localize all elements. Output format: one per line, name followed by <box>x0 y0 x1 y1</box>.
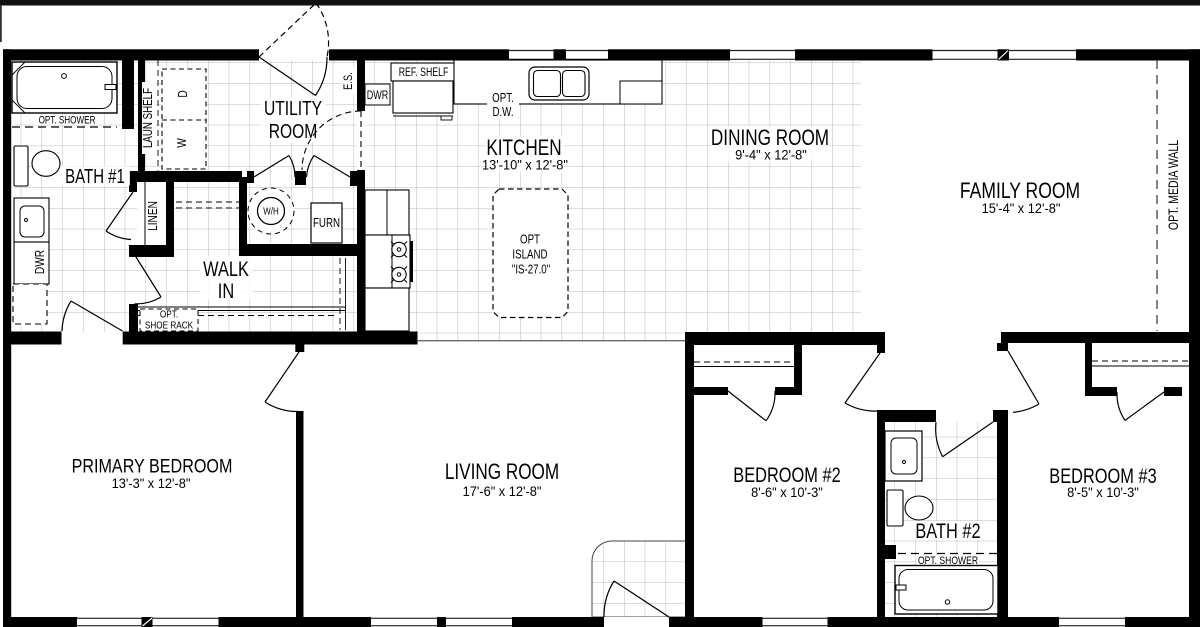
svg-text:FURN: FURN <box>313 217 340 230</box>
svg-text:"IS-27.0": "IS-27.0" <box>512 263 550 276</box>
svg-text:13'-10" x 12'-8": 13'-10" x 12'-8" <box>482 157 568 172</box>
svg-text:PRIMARY BEDROOM: PRIMARY BEDROOM <box>72 455 233 477</box>
svg-text:ROOM: ROOM <box>269 120 318 142</box>
svg-text:17'-6" x 12'-8": 17'-6" x 12'-8" <box>463 484 542 499</box>
svg-text:OPT. SHOWER: OPT. SHOWER <box>39 114 96 127</box>
svg-text:REF. SHELF: REF. SHELF <box>399 66 449 80</box>
svg-text:LIVING ROOM: LIVING ROOM <box>445 460 559 485</box>
svg-text:LINEN: LINEN <box>146 201 160 231</box>
svg-text:W: W <box>175 138 189 148</box>
svg-text:BEDROOM #2: BEDROOM #2 <box>733 463 840 486</box>
svg-text:8'-5" x 10'-3": 8'-5" x 10'-3" <box>1067 485 1139 500</box>
svg-text:OPT: OPT <box>520 233 540 246</box>
svg-text:IN: IN <box>218 279 234 302</box>
svg-text:15'-4" x 12'-8": 15'-4" x 12'-8" <box>982 201 1061 216</box>
svg-text:DWR: DWR <box>367 89 389 103</box>
svg-text:SHOE RACK: SHOE RACK <box>145 318 194 330</box>
svg-text:BATH #2: BATH #2 <box>915 519 980 542</box>
svg-text:OPT. MEDIA WALL: OPT. MEDIA WALL <box>1166 140 1182 230</box>
svg-text:UTILITY: UTILITY <box>264 97 322 119</box>
svg-text:D: D <box>176 90 190 97</box>
svg-text:BATH #1: BATH #1 <box>65 165 125 188</box>
svg-text:OPT.: OPT. <box>492 92 514 105</box>
svg-text:LAUN SHELF: LAUN SHELF <box>142 88 155 148</box>
svg-text:8'-6" x 10'-3": 8'-6" x 10'-3" <box>751 485 823 500</box>
svg-text:W/H: W/H <box>263 206 279 217</box>
svg-text:13'-3" x 12'-8": 13'-3" x 12'-8" <box>112 476 191 491</box>
svg-text:DWR: DWR <box>33 250 47 274</box>
svg-text:ISLAND: ISLAND <box>512 248 547 261</box>
svg-text:D.W.: D.W. <box>492 106 513 119</box>
svg-text:E.S.: E.S. <box>342 72 355 90</box>
svg-text:WALK: WALK <box>203 257 249 280</box>
svg-text:9'-4" x 12'-8": 9'-4" x 12'-8" <box>735 147 807 162</box>
